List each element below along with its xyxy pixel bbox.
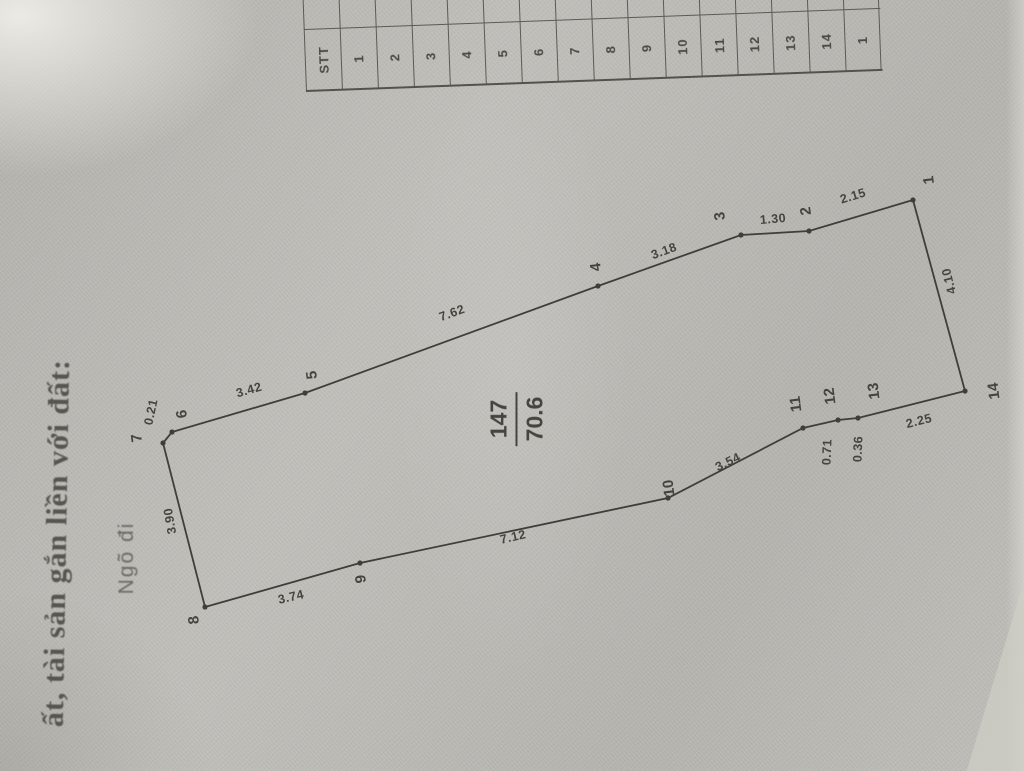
edge-length-label: 7.12 (499, 527, 528, 547)
edge-length-label: 0.21 (141, 398, 160, 427)
edge-length-label: 4.10 (939, 267, 959, 296)
vertex-label: 8 (185, 615, 203, 625)
edge-length-label: 7.62 (437, 302, 467, 324)
vertex-label: 4 (587, 262, 605, 272)
scanned-page: ất, tài sản gắn liền với đất: Ngõ đi STT… (0, 0, 1024, 771)
vertex-label: 2 (797, 206, 815, 216)
edge-length-label: 0.36 (851, 436, 866, 463)
vertex-label: 11 (787, 395, 806, 413)
vertex-label: 14 (985, 382, 1004, 401)
edge-length-label: 2.25 (905, 411, 934, 431)
vertex-label: 12 (821, 387, 840, 406)
vertex-label: 1 (920, 175, 938, 185)
edge-length-label: 2.15 (838, 185, 867, 206)
edge-length-label: 3.90 (161, 507, 179, 535)
vertex-label: 6 (173, 409, 191, 419)
vertex-label: 7 (128, 433, 146, 443)
parcel-number: 147 (486, 392, 518, 446)
edge-length-label: 3.74 (277, 587, 306, 607)
vertex-label: 10 (660, 479, 679, 498)
edge-length-label: 3.54 (713, 450, 743, 474)
edge-length-label: 1.30 (759, 211, 786, 227)
edge-length-label: 3.42 (234, 380, 263, 401)
vertex-label: 3 (711, 211, 729, 221)
edge-length-label: 3.18 (649, 240, 679, 262)
parcel-area: 70.6 (518, 392, 549, 446)
vertex-label: 5 (303, 370, 321, 380)
vertex-label: 13 (865, 382, 884, 401)
edge-length-label: 0.71 (820, 439, 835, 466)
parcel-fraction: 147 70.6 (486, 392, 549, 446)
diagram-labels: 12345678910111213142.151.303.187.623.420… (0, 0, 1024, 771)
vertex-label: 9 (352, 574, 370, 584)
